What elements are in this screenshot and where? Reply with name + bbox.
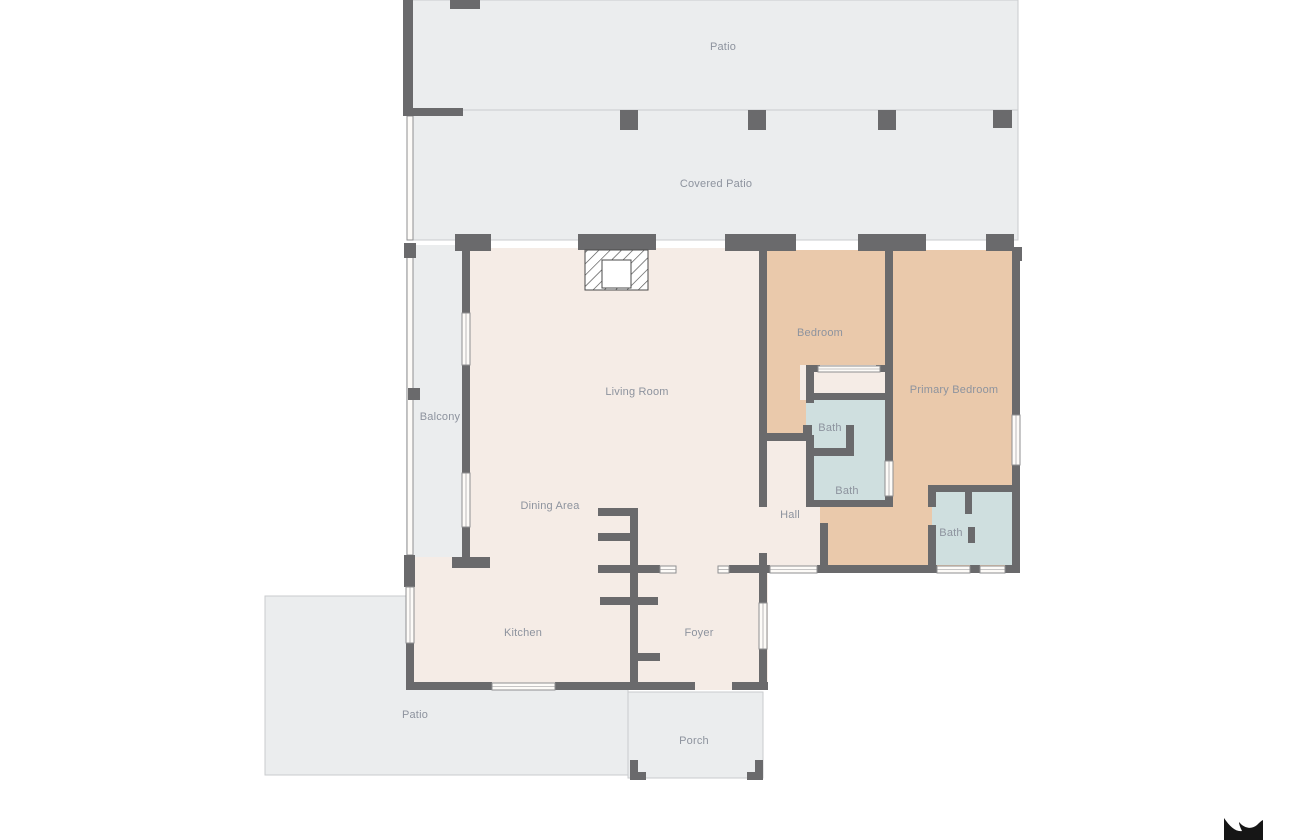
room-area-kitchen-foyer bbox=[408, 557, 768, 690]
wall-segment bbox=[462, 251, 470, 313]
wall-segment bbox=[450, 0, 480, 9]
room-label-kitchen: Kitchen bbox=[504, 627, 542, 639]
wall-segment bbox=[598, 533, 630, 541]
wall-segment bbox=[729, 565, 770, 573]
wall-segment bbox=[403, 0, 413, 116]
room-label-patio-top: Patio bbox=[710, 41, 736, 53]
wall-segment bbox=[820, 523, 828, 568]
room-label-porch: Porch bbox=[679, 735, 709, 747]
wall-segment bbox=[885, 496, 893, 507]
wall-segment bbox=[404, 243, 416, 258]
room-label-hall: Hall bbox=[780, 509, 800, 521]
wall-segment bbox=[928, 485, 1020, 492]
railing bbox=[407, 116, 413, 240]
room-area-living-dining bbox=[466, 248, 765, 568]
room-label-patio-bottom: Patio bbox=[402, 709, 428, 721]
wall-segment bbox=[578, 234, 656, 250]
wall-segment bbox=[408, 388, 420, 400]
wall-segment bbox=[759, 573, 767, 603]
wall-segment bbox=[462, 527, 470, 559]
room-area-covered-patio bbox=[408, 110, 1018, 240]
wall-segment bbox=[725, 234, 796, 251]
room-label-bath-top: Bath bbox=[818, 422, 841, 434]
room-label-balcony: Balcony bbox=[420, 411, 461, 423]
wall-segment bbox=[598, 565, 630, 573]
wall-segment bbox=[806, 448, 853, 456]
wall-segment bbox=[748, 110, 766, 130]
fireplace-firebox bbox=[602, 260, 631, 288]
wall-segment bbox=[830, 565, 937, 573]
room-label-covered-patio: Covered Patio bbox=[680, 178, 752, 190]
wall-segment bbox=[747, 772, 763, 780]
wall-segment bbox=[928, 525, 936, 573]
floorplan-page: PatioCovered PatioLiving RoomBalconyBedr… bbox=[0, 0, 1290, 840]
room-label-bath-middle: Bath bbox=[835, 485, 858, 497]
wall-segment bbox=[878, 110, 896, 130]
wall-segment bbox=[993, 110, 1012, 128]
room-label-primary-bedroom: Primary Bedroom bbox=[910, 384, 999, 396]
wall-segment bbox=[462, 365, 470, 473]
floorplan-drawing: PatioCovered PatioLiving RoomBalconyBedr… bbox=[0, 0, 1290, 840]
room-label-bath-right: Bath bbox=[939, 527, 962, 539]
wall-segment bbox=[806, 500, 893, 507]
wall-segment bbox=[452, 557, 490, 568]
wall-segment bbox=[638, 653, 660, 661]
room-area-patio-top bbox=[408, 0, 1018, 110]
room-area-bath-middle bbox=[806, 448, 893, 507]
wall-segment bbox=[406, 682, 492, 690]
wall-segment bbox=[638, 597, 658, 605]
room-label-bedroom: Bedroom bbox=[797, 327, 843, 339]
wall-segment bbox=[1012, 261, 1020, 415]
wall-segment bbox=[806, 435, 814, 507]
wall-segment bbox=[745, 682, 768, 690]
wall-segment bbox=[555, 682, 695, 690]
wall-segment bbox=[455, 234, 491, 251]
room-label-dining-area: Dining Area bbox=[520, 500, 580, 512]
wall-segment bbox=[638, 565, 660, 573]
wall-segment bbox=[404, 555, 415, 587]
room-label-foyer: Foyer bbox=[684, 627, 713, 639]
wall-segment bbox=[630, 508, 638, 690]
wall-segment bbox=[759, 251, 767, 507]
wall-segment bbox=[600, 597, 630, 605]
wall-segment bbox=[986, 234, 1014, 251]
room-area-balcony bbox=[406, 245, 467, 568]
wall-segment bbox=[885, 251, 893, 461]
room-area-suite-passage bbox=[820, 507, 893, 565]
wall-segment bbox=[767, 433, 805, 441]
wall-segment bbox=[858, 234, 926, 251]
wall-segment bbox=[620, 110, 638, 130]
wall-segment bbox=[1005, 565, 1020, 573]
wall-segment bbox=[970, 565, 980, 573]
wall-segment bbox=[965, 492, 972, 514]
wall-segment bbox=[403, 108, 463, 116]
wall-segment bbox=[968, 527, 975, 543]
wall-segment bbox=[928, 485, 936, 507]
wall-segment bbox=[806, 393, 890, 400]
wall-segment bbox=[630, 772, 646, 780]
room-label-living-room: Living Room bbox=[605, 386, 668, 398]
wall-segment bbox=[1012, 465, 1020, 573]
wall-segment bbox=[1012, 247, 1022, 261]
wall-segment bbox=[598, 508, 630, 516]
wall-segment bbox=[846, 425, 854, 456]
